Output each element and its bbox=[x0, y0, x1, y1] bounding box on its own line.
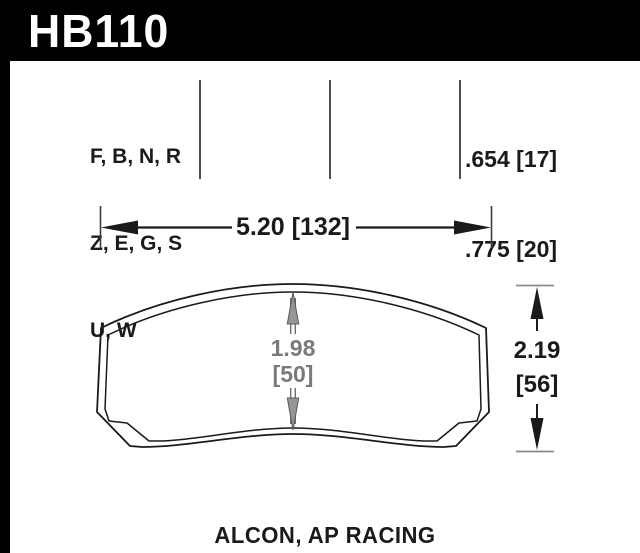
overall-height-dimension-label: 2.19 [56] bbox=[503, 334, 571, 402]
arrow-down-icon bbox=[531, 418, 544, 450]
caliper-applications: ALCON, AP RACING bbox=[23, 522, 628, 549]
arrow-up-icon bbox=[287, 292, 298, 324]
spec-sheet: HB110 F, B, N, R Z, E, G, S U, W .654 [1… bbox=[0, 0, 640, 553]
pad-dimension-diagram bbox=[0, 0, 640, 553]
overall-height-metric: [56] bbox=[503, 368, 571, 402]
width-dimension-label: 5.20 [132] bbox=[227, 213, 359, 241]
center-height-metric: [50] bbox=[243, 361, 343, 387]
center-height-dimension-label: 1.98 [50] bbox=[243, 335, 343, 387]
center-height-value: 1.98 bbox=[243, 335, 343, 361]
arrow-up-icon bbox=[531, 287, 544, 319]
arrow-down-icon bbox=[287, 398, 298, 430]
arrow-left-icon bbox=[101, 221, 138, 235]
arrow-right-icon bbox=[454, 221, 491, 235]
overall-height-value: 2.19 bbox=[503, 334, 571, 368]
